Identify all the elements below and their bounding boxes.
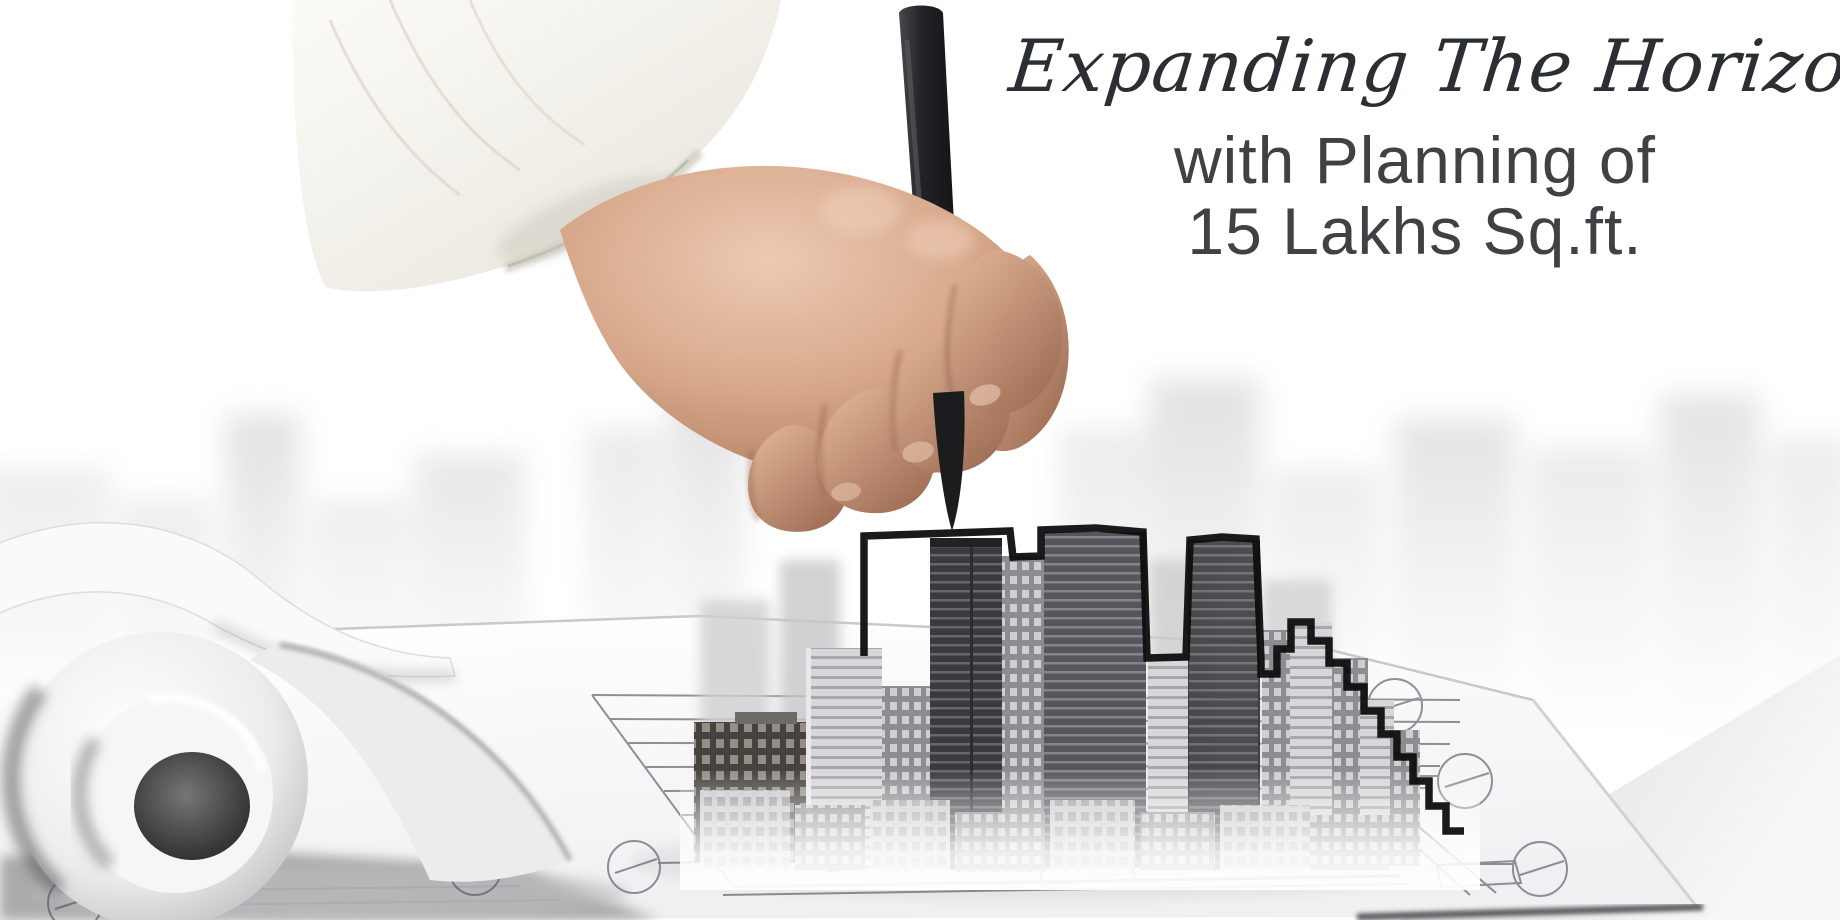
banner-scene xyxy=(0,0,1840,920)
banner: Expanding The Horizon with Planning of 1… xyxy=(0,0,1840,920)
